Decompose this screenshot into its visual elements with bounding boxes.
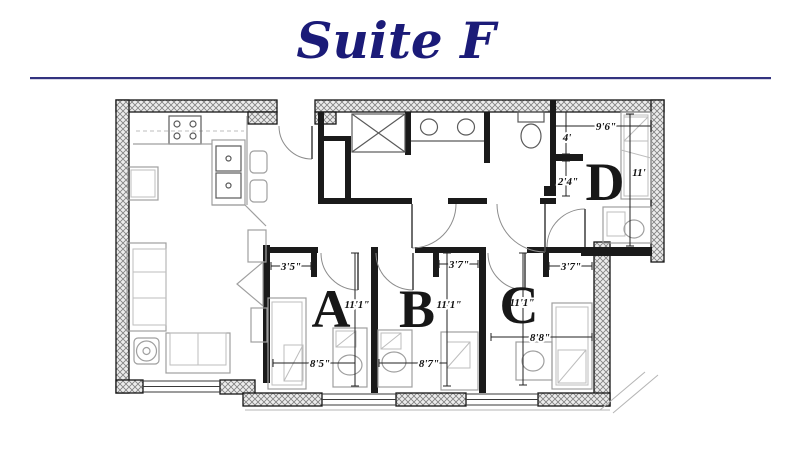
page-title: Suite F xyxy=(296,11,499,70)
loveseat xyxy=(166,333,230,373)
dim-b-length: 11'1" xyxy=(436,299,461,311)
dim-d-nook: 2'4" xyxy=(557,176,578,188)
bar-stool xyxy=(250,180,267,202)
kitchen xyxy=(128,116,267,226)
doors xyxy=(279,126,585,290)
dim-d-closet-depth: 4' xyxy=(562,132,572,144)
sofa xyxy=(127,243,166,331)
side-table xyxy=(134,338,159,364)
refrigerator xyxy=(128,167,158,200)
dim-a-closet: 3'5" xyxy=(280,261,301,273)
room-d-door-swing xyxy=(547,209,585,247)
dim-c-closet: 3'7" xyxy=(560,261,581,273)
room-a-letter: A xyxy=(312,279,351,339)
bar-stool xyxy=(250,151,267,173)
bathroom-door-swing xyxy=(412,204,456,248)
desk xyxy=(516,342,552,380)
floor-plan-canvas: Suite F xyxy=(0,0,800,476)
bed xyxy=(552,303,592,389)
desk-chair xyxy=(522,351,544,371)
room-d-letter: D xyxy=(586,152,625,212)
bathroom xyxy=(352,112,544,152)
entry-door-swing xyxy=(279,126,312,159)
desk-chair xyxy=(338,355,362,375)
shower xyxy=(352,114,405,152)
dim-b-closet: 3'7" xyxy=(448,259,469,271)
dim-b-width: 8'7" xyxy=(419,358,439,370)
toilet xyxy=(518,112,544,148)
bed xyxy=(268,298,306,389)
tv-stand xyxy=(237,230,267,342)
stove xyxy=(169,116,201,144)
desk-chair xyxy=(624,220,644,238)
dim-d-length: 11' xyxy=(632,167,645,179)
dim-d-width: 9'6" xyxy=(596,121,616,133)
dim-a-width: 8'5" xyxy=(310,358,330,370)
tv xyxy=(237,262,263,306)
bed xyxy=(621,112,651,199)
kitchen-sink xyxy=(216,146,241,198)
room-c-letter: C xyxy=(500,275,539,335)
title-divider xyxy=(30,77,771,79)
living-room xyxy=(127,230,267,373)
floor-plan-page: Suite F xyxy=(0,0,800,476)
room-b-letter: B xyxy=(399,279,435,339)
desk xyxy=(603,207,651,243)
vanity-sinks xyxy=(411,119,484,141)
desk-chair xyxy=(382,352,406,372)
toilet-room-door-swing xyxy=(497,204,545,252)
